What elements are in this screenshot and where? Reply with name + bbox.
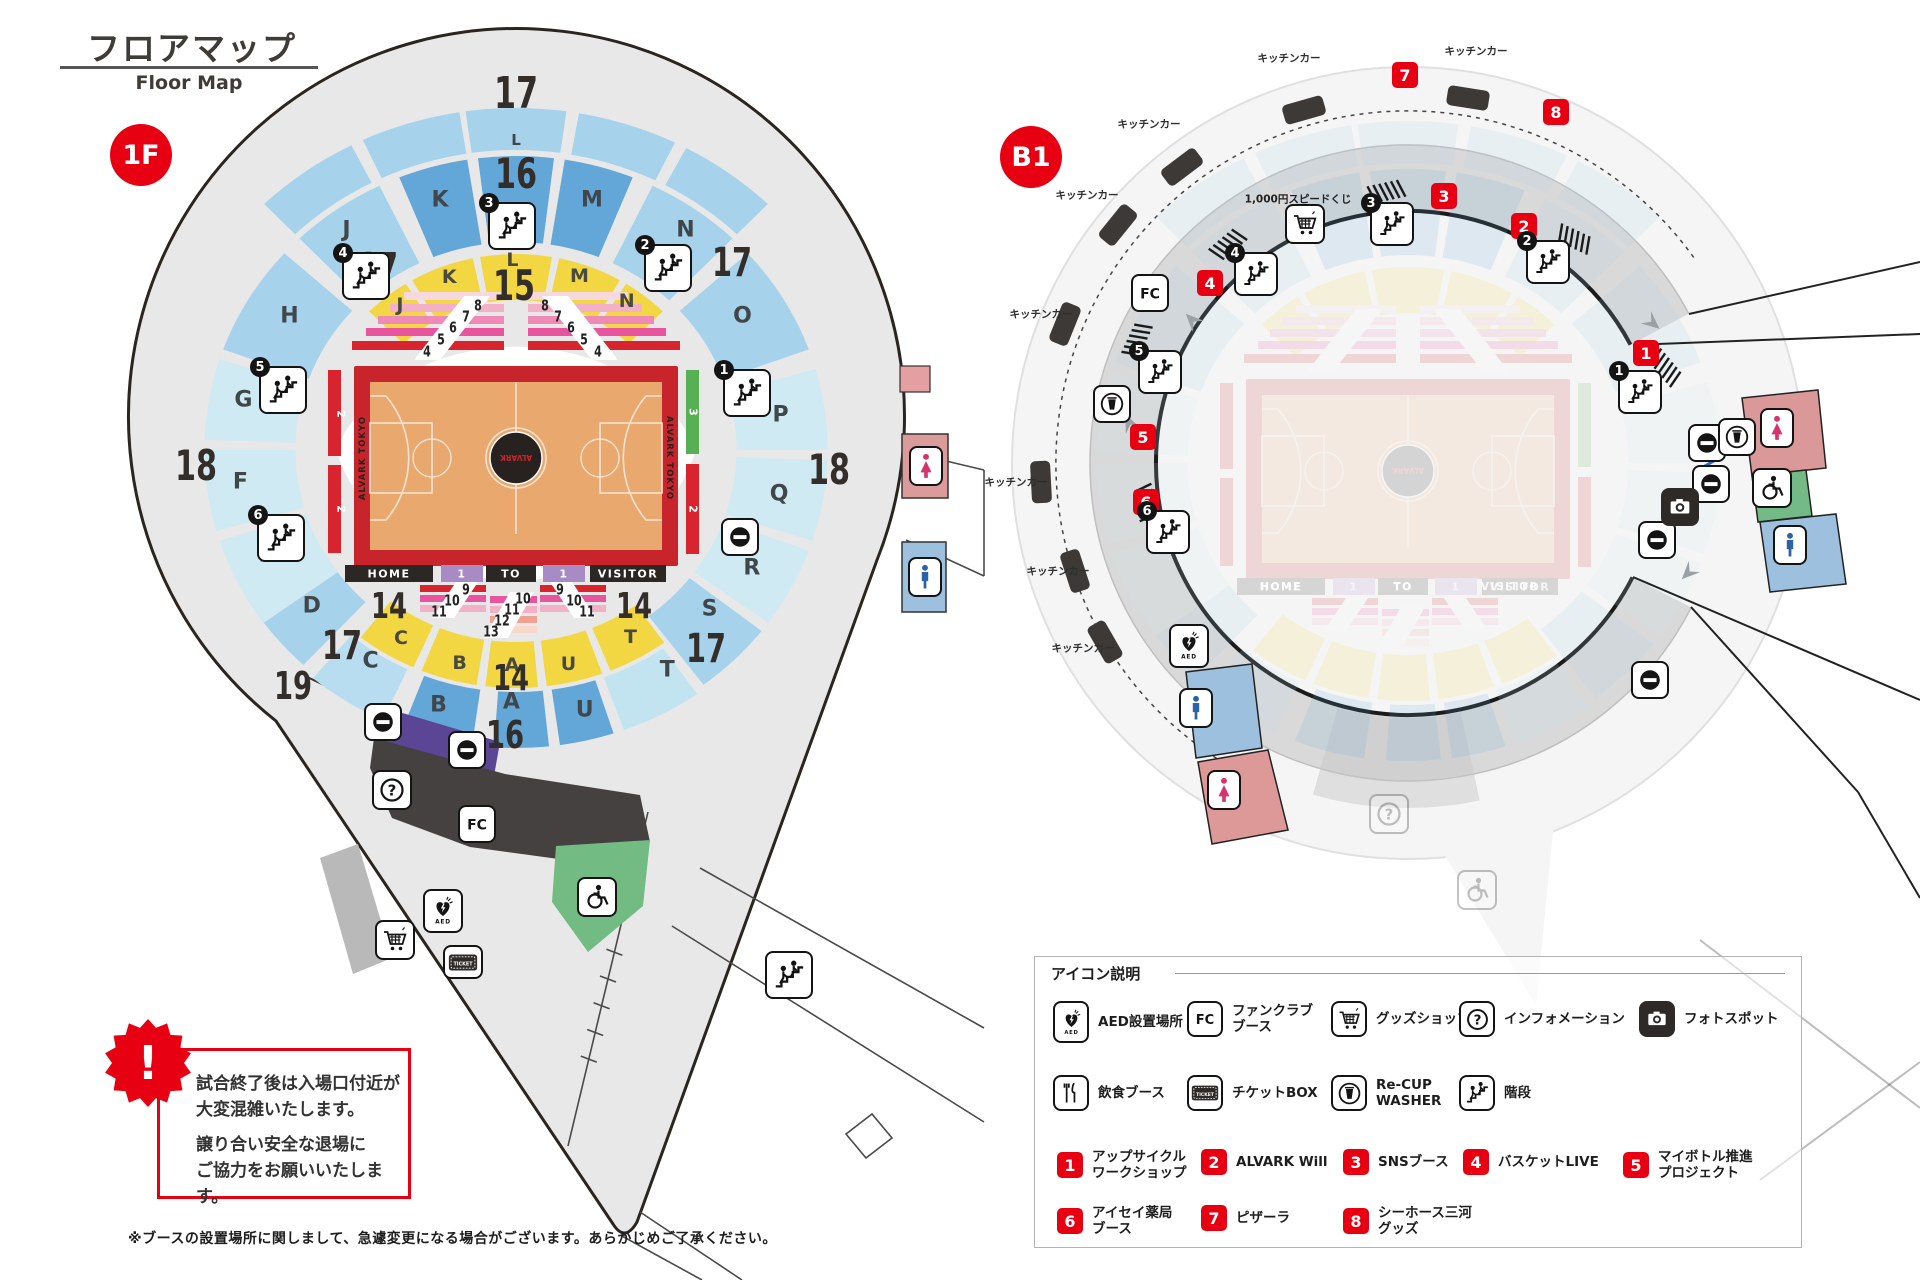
booth-number-badge: 3: [1343, 1149, 1369, 1175]
toilet-female-icon: [1760, 408, 1794, 448]
booth-number-badge: 4: [1463, 1149, 1489, 1175]
section-letter-R: R: [743, 556, 760, 581]
aed-icon: AED: [423, 889, 463, 933]
corridor-line: [700, 868, 984, 1028]
section-letter-O: O: [733, 304, 752, 329]
yellow-section-letter-C: C: [394, 627, 408, 649]
booth-badge-8: 8: [1543, 99, 1569, 125]
booth-badge-4: 4: [1197, 270, 1223, 296]
recup-washer-icon: [1093, 385, 1131, 423]
b1-ghost-bar-visitor: VISITOR: [1481, 581, 1539, 593]
yellow-section-letter-K: K: [442, 266, 457, 288]
booth-number-badge: 5: [1623, 1152, 1649, 1178]
stairs-number-badge: 4: [333, 243, 353, 263]
zone-number-14: 14: [371, 589, 407, 625]
courtside-strip: [1578, 477, 1591, 567]
booth-number-badge: 8: [1343, 1208, 1369, 1234]
zone-number-16: 16: [495, 153, 537, 195]
courtside-strip: [1220, 383, 1233, 469]
stairs-number-badge: 1: [714, 360, 734, 380]
yellow-section-A: [1377, 654, 1430, 701]
booth-number-badge: 2: [1201, 1149, 1227, 1175]
zone-number-16: 16: [486, 716, 524, 754]
legend-label: 階段: [1504, 1085, 1531, 1101]
stairs-icon: 4: [342, 252, 390, 300]
wheelchair-icon: [1752, 468, 1792, 508]
legend-item-stairsPlain: 階段: [1459, 1075, 1531, 1111]
booth-number-badge: 1: [1057, 1152, 1083, 1178]
food-icon: [1053, 1075, 1089, 1111]
legend-item-cart: グッズショップ: [1331, 1001, 1471, 1037]
legend-booth-7: 7ピザーラ: [1201, 1205, 1290, 1231]
booth-badge-5: 5: [1130, 424, 1156, 450]
row-number-4: 4: [594, 345, 602, 360]
recup-washer-icon: [1718, 418, 1756, 456]
kitchen-car-label: キッチンカー: [1052, 641, 1115, 656]
toilet-icon: [908, 557, 942, 597]
legend-booth-5: 5マイボトル推進 プロジェクト: [1623, 1149, 1753, 1181]
room-small: [900, 366, 930, 392]
stairs-icon: 6: [257, 514, 305, 562]
goods-shop-cart-icon: [375, 920, 415, 960]
legend-booth-3: 3SNSブース: [1343, 1149, 1449, 1175]
svg-text:AED: AED: [1181, 655, 1197, 661]
section-letter-N: N: [676, 217, 694, 242]
stairs-number-badge: 5: [250, 357, 270, 377]
wheelchair-icon: [577, 877, 617, 917]
stairs-number-badge: 6: [1137, 501, 1157, 521]
courtside-strip-green: [1578, 383, 1591, 467]
upper-tier-letter-L: L: [511, 131, 521, 149]
no-entry-icon: [1638, 521, 1676, 559]
booth-number-badge: 7: [1201, 1205, 1227, 1231]
court-side-text: ALVARK TOKYO: [664, 416, 674, 500]
recup-icon: [1331, 1075, 1367, 1111]
information-icon: ?: [1369, 794, 1409, 834]
toilet-female-icon: [1207, 770, 1241, 810]
toilet-icon: [1773, 525, 1807, 565]
svg-text:?: ?: [388, 782, 397, 800]
strip-number-2: 2: [334, 410, 347, 418]
stairs-icon: 4: [1234, 252, 1278, 296]
booth-badge-1: 1: [1633, 340, 1659, 366]
fan-club-icon: FC: [458, 805, 496, 843]
section-letter-B: B: [430, 692, 447, 717]
zone-number-15: 15: [493, 265, 535, 307]
stairs-icon: [765, 951, 813, 999]
yellow-section-letter-N: N: [619, 290, 635, 312]
court-logo-text: ALVARK: [1391, 466, 1424, 475]
row-number-5: 5: [437, 333, 445, 348]
b1-ghost-bar-to: TO: [1393, 581, 1412, 593]
seat-row-6: [378, 316, 504, 324]
svg-text:FC: FC: [1140, 287, 1160, 303]
stairs-icon: 6: [1146, 510, 1190, 554]
row-number-9: 9: [462, 583, 470, 598]
strip-number-2: 2: [686, 505, 699, 513]
legend-booth-4: 4バスケットLIVE: [1463, 1149, 1599, 1175]
wheelchair-icon: [1457, 870, 1497, 910]
seat-row-7: [1420, 317, 1534, 325]
no-entry-icon: [1638, 521, 1676, 559]
svg-text:TICKET: TICKET: [453, 961, 473, 967]
information-icon: ?: [372, 770, 412, 810]
title-underline: [60, 66, 318, 69]
yellow-section-letter-U: U: [561, 653, 576, 675]
legend-label: 飲食ブース: [1098, 1085, 1165, 1101]
row-number-8: 8: [474, 299, 482, 314]
yellow-section-letter-J: J: [396, 294, 403, 316]
stairs-number-badge: 3: [1361, 193, 1381, 213]
wheelchair-icon: [1752, 468, 1792, 508]
wheelchair-icon: [1457, 870, 1497, 910]
seat-row-6: [528, 316, 654, 324]
legend-item-aed: AEDAED設置場所: [1053, 1001, 1183, 1043]
floor-map-page: ALVARKHOME1TO1VISITORALVARKHOME1TO1VISIT…: [0, 0, 1920, 1280]
legend-booth-label: ALVARK Will: [1236, 1154, 1328, 1170]
seat-row-7: [390, 304, 504, 312]
b1-ghost-bar-home: HOME: [1260, 581, 1301, 593]
goods-shop-cart-icon: [375, 920, 415, 960]
kitchen-car-label: キッチンカー: [1010, 307, 1073, 322]
row-number-5: 5: [580, 333, 588, 348]
legend-label: ファンクラブ ブース: [1232, 1003, 1313, 1035]
legend-item-food: 飲食ブース: [1053, 1075, 1165, 1111]
svg-text:?: ?: [1473, 1012, 1481, 1028]
svg-text:1: 1: [457, 568, 466, 581]
kitchen-car-label: キッチンカー: [1056, 188, 1119, 203]
no-entry-icon: [1631, 661, 1669, 699]
seat-section-A: [1386, 704, 1441, 761]
warning-exclamation: !: [104, 1019, 192, 1107]
legend-booth-label: シーホース三河 グッズ: [1378, 1205, 1472, 1237]
information-icon: ?: [1369, 794, 1409, 834]
row-number-7: 7: [462, 310, 470, 325]
svg-text:AED: AED: [1064, 1029, 1078, 1035]
stairs-icon: 1: [1618, 370, 1662, 414]
kitchen-car-label: キッチンカー: [1445, 44, 1508, 59]
zone-number-17: 17: [322, 626, 362, 666]
svg-text:1: 1: [1349, 581, 1358, 594]
warning-line-1: 試合終了後は入場口付近が: [196, 1074, 400, 1094]
stairs-icon: 2: [644, 244, 692, 292]
legend-label: インフォメーション: [1504, 1011, 1625, 1027]
fan-club-icon: FC: [1131, 274, 1169, 312]
upper-tier-section: [1358, 121, 1459, 166]
svg-text:1: 1: [559, 568, 568, 581]
booth-badge-7: 7: [1392, 62, 1418, 88]
cameraB-icon: [1639, 1001, 1675, 1037]
legend-item-cameraB: フォトスポット: [1639, 1001, 1779, 1037]
court-side-text: ALVARK TOKYO: [358, 416, 368, 500]
legend-booth-label: アップサイクル ワークショップ: [1092, 1149, 1187, 1181]
zone-number-18: 18: [808, 449, 850, 491]
page-title: フロアマップ: [62, 22, 322, 70]
legend-item-ticket: TICKETチケットBOX: [1187, 1075, 1318, 1111]
no-entry-icon: [448, 731, 486, 769]
aed-icon: AED: [423, 889, 463, 933]
svg-text:AED: AED: [435, 920, 451, 926]
legend-booth-1: 1アップサイクル ワークショップ: [1057, 1149, 1187, 1181]
corridor-line: [672, 926, 984, 1122]
goods-shop-cart-icon: [1285, 204, 1325, 244]
seat-row-6: [1420, 329, 1546, 337]
legend-booth-label: アイセイ薬局 ブース: [1092, 1205, 1172, 1237]
stairs-number-badge: 2: [635, 235, 655, 255]
warning-line-4: ご協力をお願いいたします。: [196, 1161, 383, 1207]
aed-icon: AED: [1169, 624, 1209, 668]
row-number-7: 7: [554, 310, 562, 325]
row-number-6: 6: [449, 321, 457, 336]
stairs-icon: 1: [723, 369, 771, 417]
no-entry-icon: [1631, 661, 1669, 699]
stairs-icon: [765, 951, 813, 999]
stairsPlain-icon: [1459, 1075, 1495, 1111]
svg-text:1: 1: [1451, 581, 1460, 594]
yellow-section-letter-M: M: [570, 265, 589, 287]
strip-number-2: 2: [334, 505, 347, 513]
booth-number-badge: 6: [1057, 1208, 1083, 1234]
footnote: ※ブースの設置場所に関しまして、急遽変更になる場合がございます。あらかじめご了承…: [128, 1228, 777, 1248]
toilet-female-icon: [909, 446, 943, 486]
toilet-icon: [1179, 688, 1213, 728]
legend-label: チケットBOX: [1232, 1085, 1318, 1101]
row-number-11: 11: [431, 605, 446, 620]
stairs-icon: 2: [1526, 240, 1570, 284]
fan-club-icon: FC: [458, 805, 496, 843]
row-number-9: 9: [556, 583, 564, 598]
corridor-block: [846, 1114, 892, 1158]
zone-number-17: 17: [494, 72, 538, 116]
svg-text:HOME: HOME: [367, 568, 410, 581]
photo-spot-camera-icon: [1661, 488, 1699, 526]
seat-row-6: [1270, 329, 1396, 337]
toilet-female-icon: [1207, 770, 1241, 810]
legend-item-info: ?インフォメーション: [1459, 1001, 1625, 1037]
section-letter-J: J: [342, 217, 350, 242]
wheelchair-icon: [577, 877, 617, 917]
stairs-number-badge: 3: [479, 193, 499, 213]
section-letter-F: F: [233, 469, 248, 494]
yellow-section-letter-B: B: [452, 652, 466, 674]
zone-number-17: 17: [686, 629, 726, 669]
legend-label: AED設置場所: [1098, 1014, 1183, 1030]
aed-icon: AED: [1053, 1001, 1089, 1043]
zone-number-17: 17: [712, 243, 752, 283]
zone-number-19: 19: [274, 667, 312, 705]
svg-text:?: ?: [1385, 806, 1394, 824]
court-logo-text: ALVARK: [499, 453, 532, 462]
section-letter-M: M: [581, 188, 603, 213]
legend-booth-2: 2ALVARK Will: [1201, 1149, 1328, 1175]
kitchen-car-label: キッチンカー: [985, 475, 1048, 490]
legend-box: アイコン説明 AEDAED設置場所FCファンクラブ ブースグッズショップ?インフ…: [1034, 956, 1802, 1248]
ticket-box-icon: TICKET: [443, 945, 483, 979]
row-number-8: 8: [541, 299, 549, 314]
legend-booth-8: 8シーホース三河 グッズ: [1343, 1205, 1472, 1237]
stairs-icon: 5: [259, 366, 307, 414]
zone-number-14: 14: [493, 661, 529, 697]
no-entry-icon: [721, 518, 759, 556]
recup-washer-icon: [1093, 385, 1131, 423]
stairs-icon: 3: [1370, 202, 1414, 246]
row-number-6: 6: [567, 321, 575, 336]
stairs-icon: 5: [1138, 350, 1182, 394]
goods-shop-cart-icon: [1285, 204, 1325, 244]
section-letter-T: T: [660, 657, 675, 682]
stairs-number-badge: 2: [1517, 231, 1537, 251]
legend-item-recup: Re-CUP WASHER: [1331, 1075, 1441, 1111]
warning-line-3: 譲り合い安全な退場に: [196, 1135, 366, 1155]
row-number-11: 11: [579, 605, 594, 620]
fc-icon: FC: [1187, 1001, 1223, 1037]
legend-booth-6: 6アイセイ薬局 ブース: [1057, 1205, 1172, 1237]
no-entry-icon: [364, 703, 402, 741]
zone-number-14: 14: [616, 589, 652, 625]
toilet-icon: [1179, 688, 1213, 728]
ticket-box-icon: TICKET: [443, 945, 483, 979]
section-letter-C: C: [362, 649, 378, 674]
ticket-icon: TICKET: [1187, 1075, 1223, 1111]
legend-label: フォトスポット: [1684, 1011, 1779, 1027]
stairs-number-badge: 5: [1129, 341, 1149, 361]
warning-line-2: 大変混雑いたします。: [196, 1100, 364, 1120]
legend-rule: [1175, 973, 1785, 974]
kitchen-car-label: キッチンカー: [1118, 117, 1181, 132]
info-icon: ?: [1459, 1001, 1495, 1037]
legend-item-fc: FCファンクラブ ブース: [1187, 1001, 1313, 1037]
legend-title: アイコン説明: [1051, 963, 1140, 984]
section-letter-G: G: [234, 388, 252, 413]
svg-text:VISITOR: VISITOR: [598, 568, 658, 581]
legend-booth-label: SNSブース: [1378, 1154, 1449, 1170]
svg-text:TICKET: TICKET: [1196, 1092, 1215, 1098]
floor-badge-b1: B1: [1000, 126, 1062, 188]
no-entry-icon: [721, 518, 759, 556]
svg-text:FC: FC: [1196, 1013, 1214, 1028]
section-letter-D: D: [303, 594, 321, 619]
toilet-icon: [1773, 525, 1807, 565]
stairs-number-badge: 1: [1609, 361, 1629, 381]
yellow-section-letter-T: T: [624, 626, 637, 648]
kitchen-car-label: キッチンカー: [1027, 564, 1090, 579]
stairs-number-badge: 4: [1225, 243, 1245, 263]
legend-booth-label: ピザーラ: [1236, 1210, 1290, 1226]
floor-badge-1f: 1F: [110, 124, 172, 186]
photo-spot-camera-icon: [1661, 488, 1699, 526]
strip-number-3: 3: [686, 408, 699, 416]
section-letter-H: H: [280, 304, 298, 329]
aed-icon: AED: [1169, 624, 1209, 668]
b1-corridor-line: [1858, 792, 1920, 898]
legend-label: グッズショップ: [1376, 1011, 1471, 1027]
warning-text: 試合終了後は入場口付近が 大変混雑いたします。 譲り合い安全な退場に ご協力をお…: [196, 1071, 408, 1210]
legend-booth-label: バスケットLIVE: [1498, 1154, 1599, 1170]
toilet-female-icon: [1760, 408, 1794, 448]
recup-washer-icon: [1718, 418, 1756, 456]
warning-box: 試合終了後は入場口付近が 大変混雑いたします。 譲り合い安全な退場に ご協力をお…: [157, 1048, 411, 1199]
seat-row-7: [1282, 317, 1396, 325]
svg-text:FC: FC: [467, 818, 487, 834]
section-letter-Q: Q: [770, 481, 789, 506]
section-letter-P: P: [772, 402, 788, 427]
zone-number-18: 18: [175, 445, 217, 487]
page-title-en: Floor Map: [60, 72, 318, 94]
row-number-13: 13: [483, 625, 498, 640]
row-number-4: 4: [423, 345, 431, 360]
kitchen-car-label: キッチンカー: [1258, 51, 1321, 66]
information-icon: ?: [372, 770, 412, 810]
legend-booth-label: マイボトル推進 プロジェクト: [1658, 1149, 1753, 1181]
booth-badge-3: 3: [1431, 183, 1457, 209]
no-entry-icon: [448, 731, 486, 769]
no-entry-icon: [364, 703, 402, 741]
section-letter-K: K: [432, 188, 449, 213]
toilet-icon: [908, 557, 942, 597]
toilet-female-icon: [909, 446, 943, 486]
legend-label: Re-CUP WASHER: [1376, 1077, 1441, 1109]
section-letter-U: U: [576, 698, 594, 723]
section-letter-S: S: [702, 596, 718, 621]
courtside-strip: [1220, 478, 1233, 566]
fan-club-icon: FC: [1131, 274, 1169, 312]
stairs-icon: 3: [488, 202, 536, 250]
stairs-number-badge: 6: [248, 505, 268, 525]
cart-icon: [1331, 1001, 1367, 1037]
svg-text:TO: TO: [501, 568, 521, 581]
